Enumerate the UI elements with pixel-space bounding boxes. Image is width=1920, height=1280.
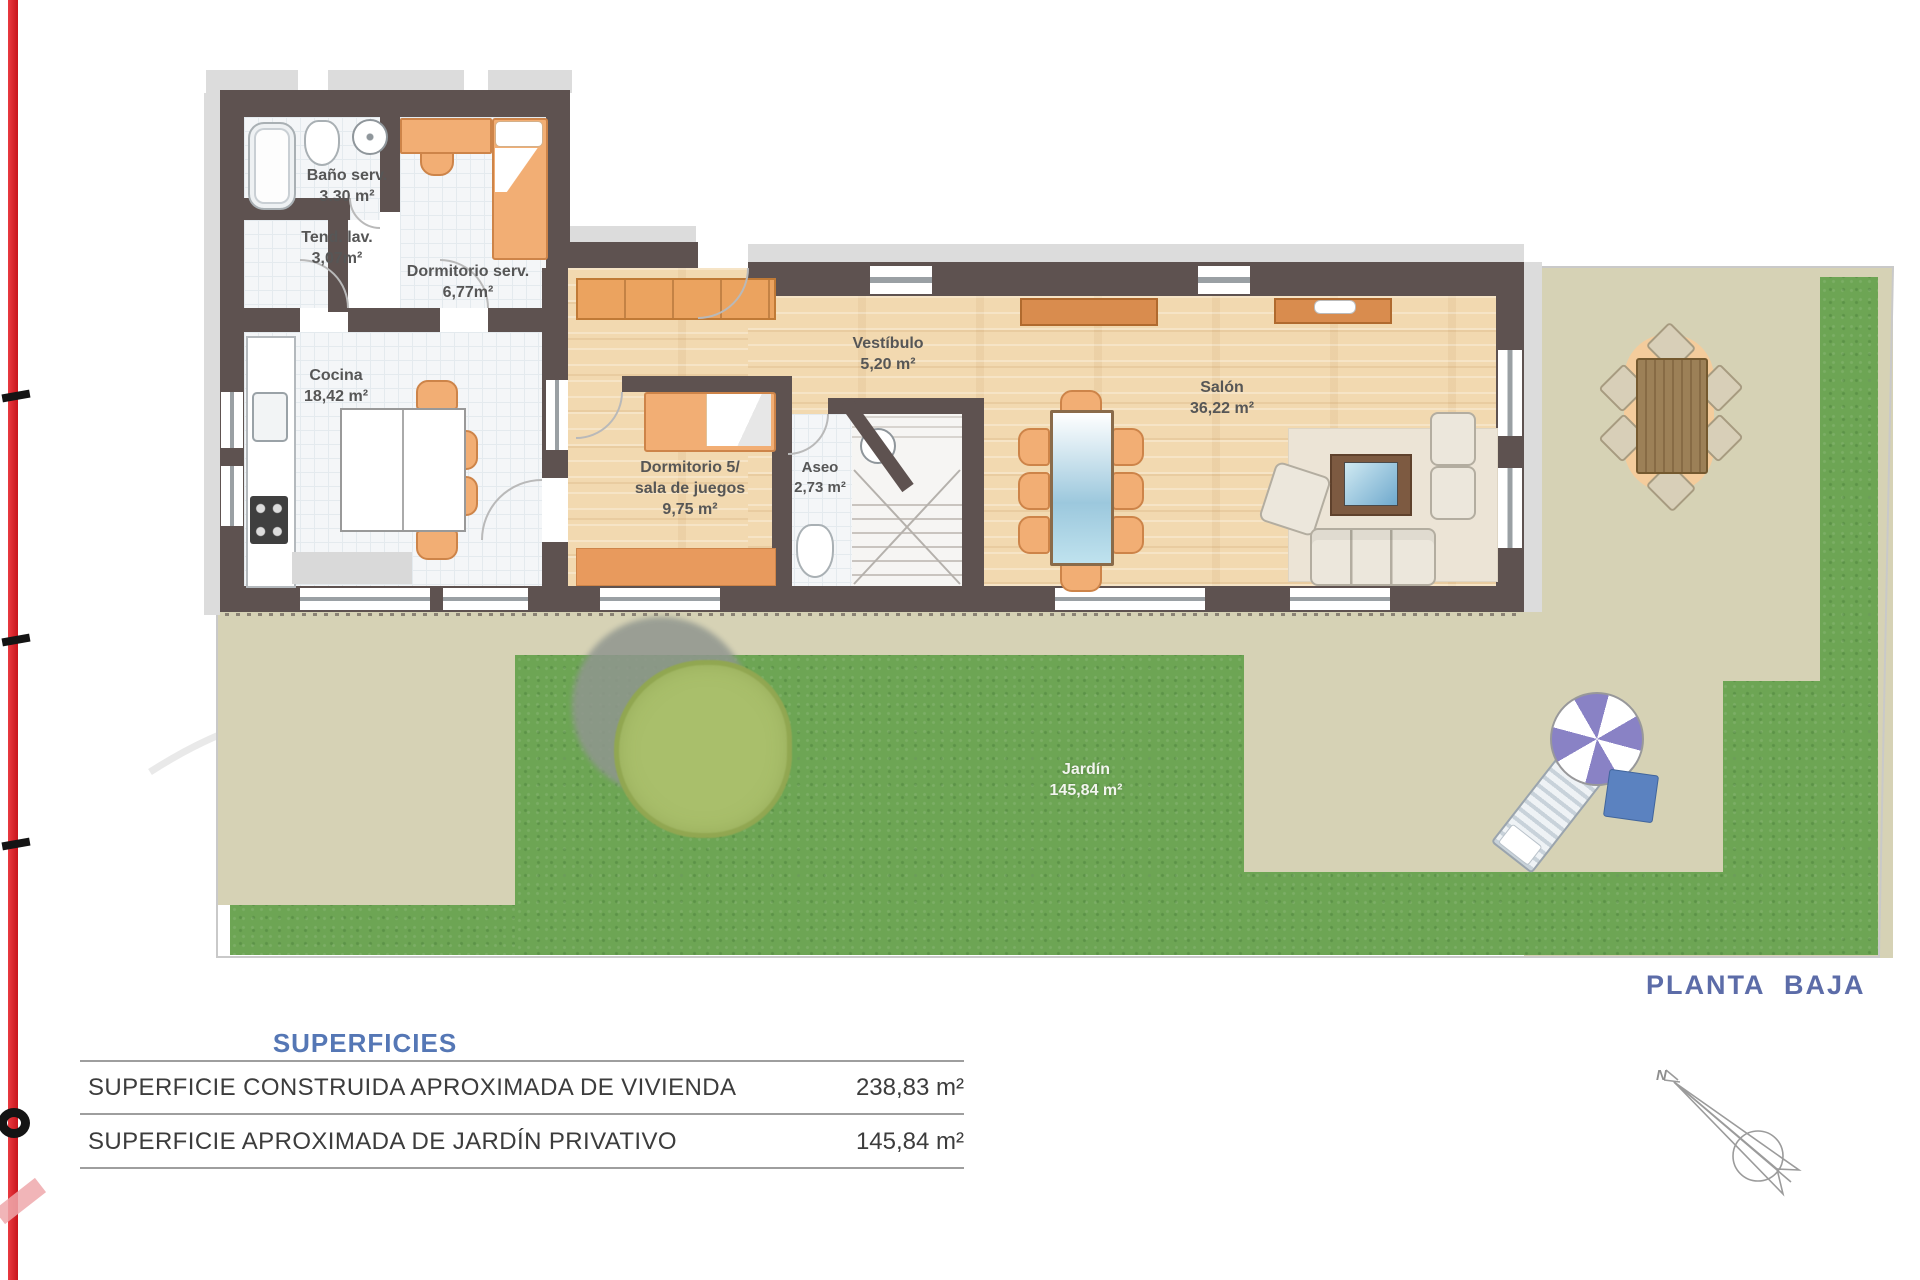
outdoor-table bbox=[1636, 358, 1708, 474]
room-label-dormitorio5: Dormitorio 5/ sala de juegos 9,75 m² bbox=[635, 458, 745, 520]
armchair-icon bbox=[1430, 412, 1476, 466]
room-area: 6,77m² bbox=[407, 283, 529, 304]
row-label: SUPERFICIE APROXIMADA DE JARDÍN PRIVATIV… bbox=[88, 1128, 677, 1156]
table-rule bbox=[80, 1060, 964, 1062]
window bbox=[870, 266, 932, 294]
window bbox=[443, 588, 528, 610]
room-name: Cocina bbox=[304, 366, 368, 387]
room-name: Salón bbox=[1190, 378, 1254, 399]
wall-segment bbox=[542, 542, 568, 586]
side-table bbox=[1603, 769, 1659, 823]
ring-mark bbox=[0, 1108, 30, 1138]
room-area: 3.30 m² bbox=[307, 187, 388, 208]
roof-overhang bbox=[204, 93, 220, 615]
room-name: Dormitorio 5/ bbox=[635, 458, 745, 479]
room-area: 9,75 m² bbox=[635, 500, 745, 521]
kitchen-chair bbox=[416, 380, 458, 410]
plan-title: PLANTA BAJA bbox=[1646, 970, 1866, 1001]
room-area: 18,42 m² bbox=[304, 387, 368, 408]
armchair-icon bbox=[1430, 466, 1476, 520]
window bbox=[1498, 350, 1522, 436]
dining-chair bbox=[1018, 472, 1050, 510]
row-label: SUPERFICIE CONSTRUIDA APROXIMADA DE VIVI… bbox=[88, 1074, 736, 1102]
window bbox=[1290, 588, 1390, 610]
dining-chair bbox=[1018, 428, 1050, 466]
room-label-cocina: Cocina 18,42 m² bbox=[304, 366, 368, 408]
stairs-steps bbox=[852, 492, 962, 586]
rug-icon bbox=[576, 548, 776, 586]
roof-overhang bbox=[748, 244, 1524, 262]
room-area: 145,84 m² bbox=[1050, 781, 1123, 802]
table-rule bbox=[80, 1113, 964, 1115]
garden-grass-right-strip bbox=[1820, 277, 1878, 955]
wall-segment bbox=[748, 262, 1524, 296]
wall-segment bbox=[828, 398, 984, 414]
room-name: Tend. lav. bbox=[301, 228, 372, 249]
row-value: 145,84 m² bbox=[700, 1128, 964, 1156]
garden-grass-corner bbox=[230, 905, 515, 955]
wall-segment bbox=[220, 90, 244, 612]
dining-chair bbox=[1112, 472, 1144, 510]
bed-sheet bbox=[495, 148, 541, 192]
tv-screen-icon bbox=[1344, 462, 1398, 506]
room-name: Jardín bbox=[1050, 760, 1123, 781]
wall-segment bbox=[622, 376, 772, 392]
sink-icon bbox=[352, 119, 388, 155]
kitchen-mat bbox=[292, 552, 412, 584]
room-name: Vestíbulo bbox=[852, 334, 923, 355]
room-label-salon: Salón 36,22 m² bbox=[1190, 378, 1254, 420]
stove-icon bbox=[250, 496, 288, 544]
window bbox=[1198, 266, 1250, 294]
wall-segment bbox=[220, 90, 552, 117]
bathtub-icon bbox=[248, 122, 296, 210]
property-line-bottom bbox=[216, 956, 1880, 958]
sideboard-icon bbox=[1020, 298, 1158, 326]
room-name: sala de juegos bbox=[635, 479, 745, 500]
table-rule bbox=[80, 1167, 964, 1169]
window bbox=[600, 588, 720, 610]
desk-icon bbox=[400, 118, 492, 154]
wardrobe-icon bbox=[576, 278, 776, 320]
pink-band bbox=[0, 1178, 46, 1224]
row-value: 238,83 m² bbox=[700, 1074, 964, 1102]
kitchen-table bbox=[340, 408, 466, 532]
property-line-top-right bbox=[1524, 266, 1894, 268]
dining-chair bbox=[1112, 516, 1144, 554]
room-label-tendedero: Tend. lav. 3,07m² bbox=[301, 228, 372, 270]
room-area: 5,20 m² bbox=[852, 355, 923, 376]
compass-icon: N bbox=[1640, 1056, 1840, 1216]
sofa-icon bbox=[1310, 528, 1436, 586]
room-label-vestibulo: Vestíbulo 5,20 m² bbox=[852, 334, 923, 376]
dining-chair bbox=[1112, 428, 1144, 466]
toilet-icon bbox=[304, 120, 340, 166]
table-header: SUPERFICIES bbox=[80, 1028, 650, 1059]
window bbox=[300, 588, 430, 610]
chair-icon bbox=[420, 152, 454, 176]
dish-icon bbox=[1314, 300, 1356, 314]
room-label-bano: Baño serv. 3.30 m² bbox=[307, 166, 388, 208]
dining-chair bbox=[1018, 516, 1050, 554]
kitchen-sink-icon bbox=[252, 392, 288, 442]
bed-pillow bbox=[495, 121, 543, 147]
room-area: 2,73 m² bbox=[794, 478, 846, 498]
floorplan-page: Jardín 145,84 m² bbox=[0, 0, 1920, 1280]
wall-segment bbox=[348, 308, 440, 332]
terrace-patch-small bbox=[1723, 655, 1820, 681]
room-label-jardin: Jardín 145,84 m² bbox=[1050, 760, 1123, 802]
wall-segment bbox=[1496, 262, 1524, 612]
toilet-icon bbox=[796, 524, 834, 578]
window bbox=[221, 392, 243, 448]
roof-overhang bbox=[1524, 262, 1542, 612]
room-area: 3,07m² bbox=[301, 249, 372, 270]
room-label-aseo: Aseo 2,73 m² bbox=[794, 458, 846, 497]
terrace-lounge-patch bbox=[1244, 655, 1723, 872]
kitchen-counter bbox=[246, 336, 296, 588]
room-name: Dormitorio serv. bbox=[407, 262, 529, 283]
room-name: Aseo bbox=[794, 458, 846, 478]
window bbox=[546, 380, 568, 450]
sink-icon bbox=[860, 428, 896, 464]
compass-north-label: N bbox=[1656, 1067, 1668, 1084]
window bbox=[1498, 468, 1522, 548]
kitchen-chair bbox=[416, 530, 458, 560]
bed-sheet bbox=[706, 394, 771, 446]
terrace-left-column bbox=[218, 612, 515, 905]
dining-table-icon bbox=[1050, 410, 1114, 566]
wall-segment bbox=[546, 242, 698, 268]
wall-segment bbox=[962, 414, 984, 586]
dining-chair bbox=[1060, 562, 1102, 592]
tree-icon bbox=[614, 660, 792, 838]
window bbox=[221, 466, 243, 526]
plot-dotted-walkway bbox=[225, 613, 1520, 616]
wall-segment bbox=[220, 308, 300, 332]
room-area: 36,22 m² bbox=[1190, 399, 1254, 420]
room-label-dorm-serv: Dormitorio serv. 6,77m² bbox=[407, 262, 529, 304]
room-name: Baño serv. bbox=[307, 166, 388, 187]
